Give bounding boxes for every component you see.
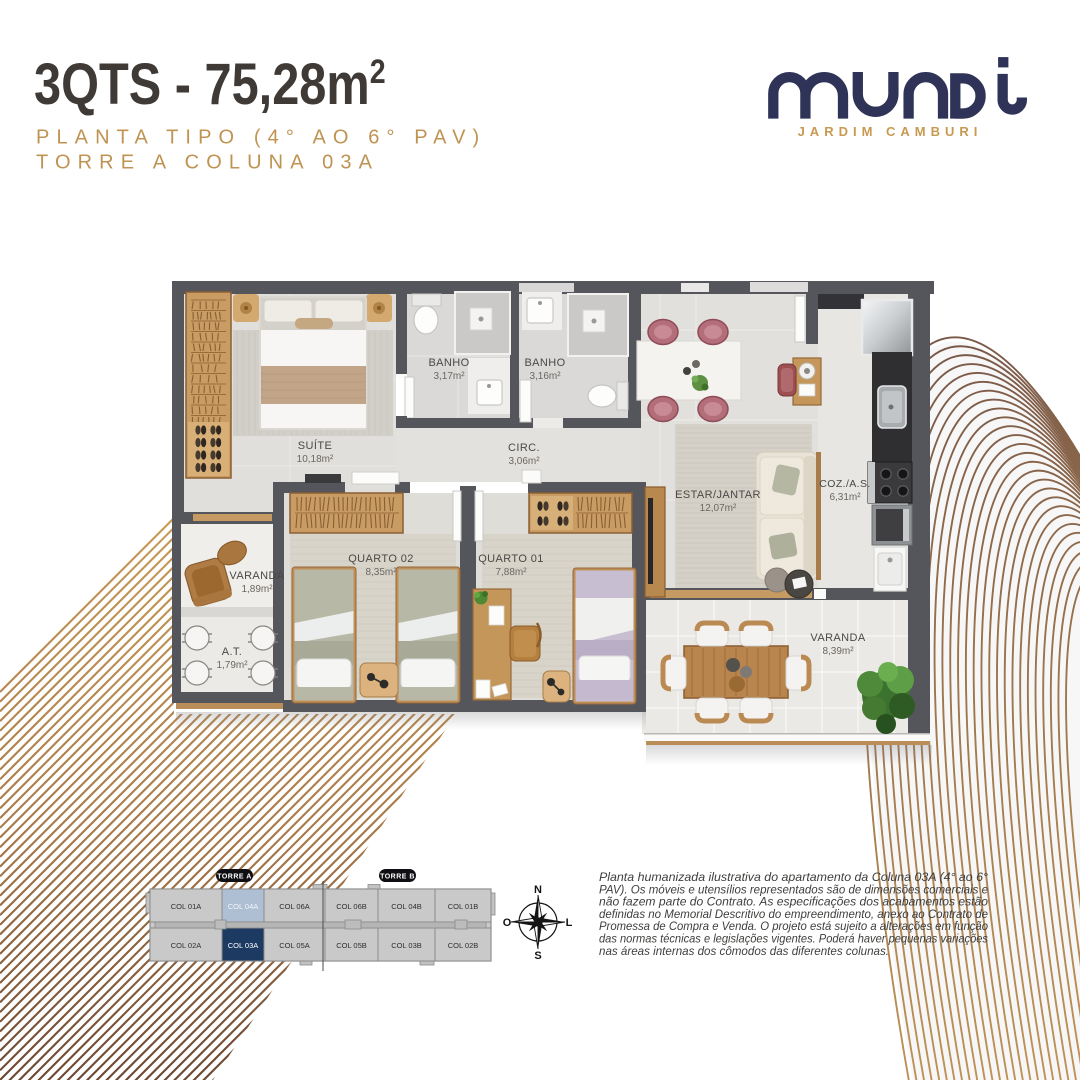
svg-text:SUÍTE: SUÍTE bbox=[298, 439, 332, 452]
svg-text:COL 05A: COL 05A bbox=[279, 941, 310, 950]
svg-text:N: N bbox=[534, 884, 542, 896]
svg-text:COL 04B: COL 04B bbox=[391, 902, 422, 911]
svg-text:COL 05B: COL 05B bbox=[336, 941, 367, 950]
svg-text:COL 03A: COL 03A bbox=[228, 941, 259, 950]
svg-text:COL 06B: COL 06B bbox=[336, 902, 367, 911]
svg-text:3,06m²: 3,06m² bbox=[508, 456, 540, 467]
svg-text:nas áreas internas dos cômodos: nas áreas internas dos cômodos das difer… bbox=[599, 945, 889, 958]
svg-text:definidas no Memorial Descriti: definidas no Memorial Descritivo do empr… bbox=[599, 908, 989, 921]
svg-text:COL 02B: COL 02B bbox=[448, 941, 479, 950]
svg-text:das normas técnicas e legislaç: das normas técnicas e legislações vigent… bbox=[599, 933, 988, 946]
svg-text:BANHO: BANHO bbox=[428, 357, 469, 369]
svg-text:CIRC.: CIRC. bbox=[508, 442, 540, 454]
svg-text:VARANDA: VARANDA bbox=[810, 632, 865, 644]
svg-text:BANHO: BANHO bbox=[524, 357, 565, 369]
svg-text:O: O bbox=[503, 917, 512, 929]
svg-text:3,17m²: 3,17m² bbox=[433, 371, 465, 382]
svg-text:PAV). Os móveis e utensílios r: PAV). Os móveis e utensílios representad… bbox=[599, 883, 989, 896]
svg-text:1,89m²: 1,89m² bbox=[241, 584, 273, 595]
svg-text:TORRE B: TORRE B bbox=[380, 874, 415, 881]
svg-text:7,88m²: 7,88m² bbox=[495, 567, 527, 578]
svg-text:3,16m²: 3,16m² bbox=[529, 371, 561, 382]
svg-text:COL 03B: COL 03B bbox=[391, 941, 422, 950]
svg-text:COL 01B: COL 01B bbox=[448, 902, 479, 911]
svg-text:não fazem parte do Contrato. A: não fazem parte do Contrato. As especifi… bbox=[599, 896, 989, 909]
svg-text:COL 06A: COL 06A bbox=[279, 902, 310, 911]
svg-text:TORRE A COLUNA 03A: TORRE A COLUNA 03A bbox=[36, 152, 379, 174]
svg-text:12,07m²: 12,07m² bbox=[700, 503, 737, 514]
svg-text:S: S bbox=[534, 950, 541, 962]
svg-text:TORRE A: TORRE A bbox=[217, 874, 252, 881]
svg-text:6,31m²: 6,31m² bbox=[829, 492, 861, 503]
svg-text:1,79m²: 1,79m² bbox=[216, 660, 248, 671]
svg-text:QUARTO 02: QUARTO 02 bbox=[348, 553, 414, 565]
svg-text:8,35m²: 8,35m² bbox=[365, 567, 397, 578]
svg-text:L: L bbox=[566, 917, 573, 929]
svg-text:VARANDA: VARANDA bbox=[229, 570, 284, 582]
svg-text:COL 01A: COL 01A bbox=[171, 902, 202, 911]
svg-text:QUARTO 01: QUARTO 01 bbox=[478, 553, 544, 565]
svg-text:COZ./A.S.: COZ./A.S. bbox=[819, 478, 870, 490]
svg-text:8,39m²: 8,39m² bbox=[822, 646, 854, 657]
svg-text:3QTS - 75,28m2: 3QTS - 75,28m2 bbox=[34, 53, 386, 117]
svg-text:Planta humanizada ilustrativa: Planta humanizada ilustrativa do apartam… bbox=[599, 871, 988, 884]
svg-text:COL 02A: COL 02A bbox=[171, 941, 202, 950]
svg-text:PLANTA TIPO (4° AO 6° PAV): PLANTA TIPO (4° AO 6° PAV) bbox=[36, 127, 486, 149]
svg-text:Promessa de Compra e Venda. O: Promessa de Compra e Venda. O projeto es… bbox=[599, 920, 989, 933]
svg-text:ESTAR/JANTAR: ESTAR/JANTAR bbox=[675, 489, 761, 501]
svg-text:COL 04A: COL 04A bbox=[228, 902, 259, 911]
svg-text:10,18m²: 10,18m² bbox=[297, 454, 334, 465]
svg-text:A.T.: A.T. bbox=[222, 646, 243, 658]
svg-text:JARDIM CAMBURI: JARDIM CAMBURI bbox=[798, 124, 983, 139]
